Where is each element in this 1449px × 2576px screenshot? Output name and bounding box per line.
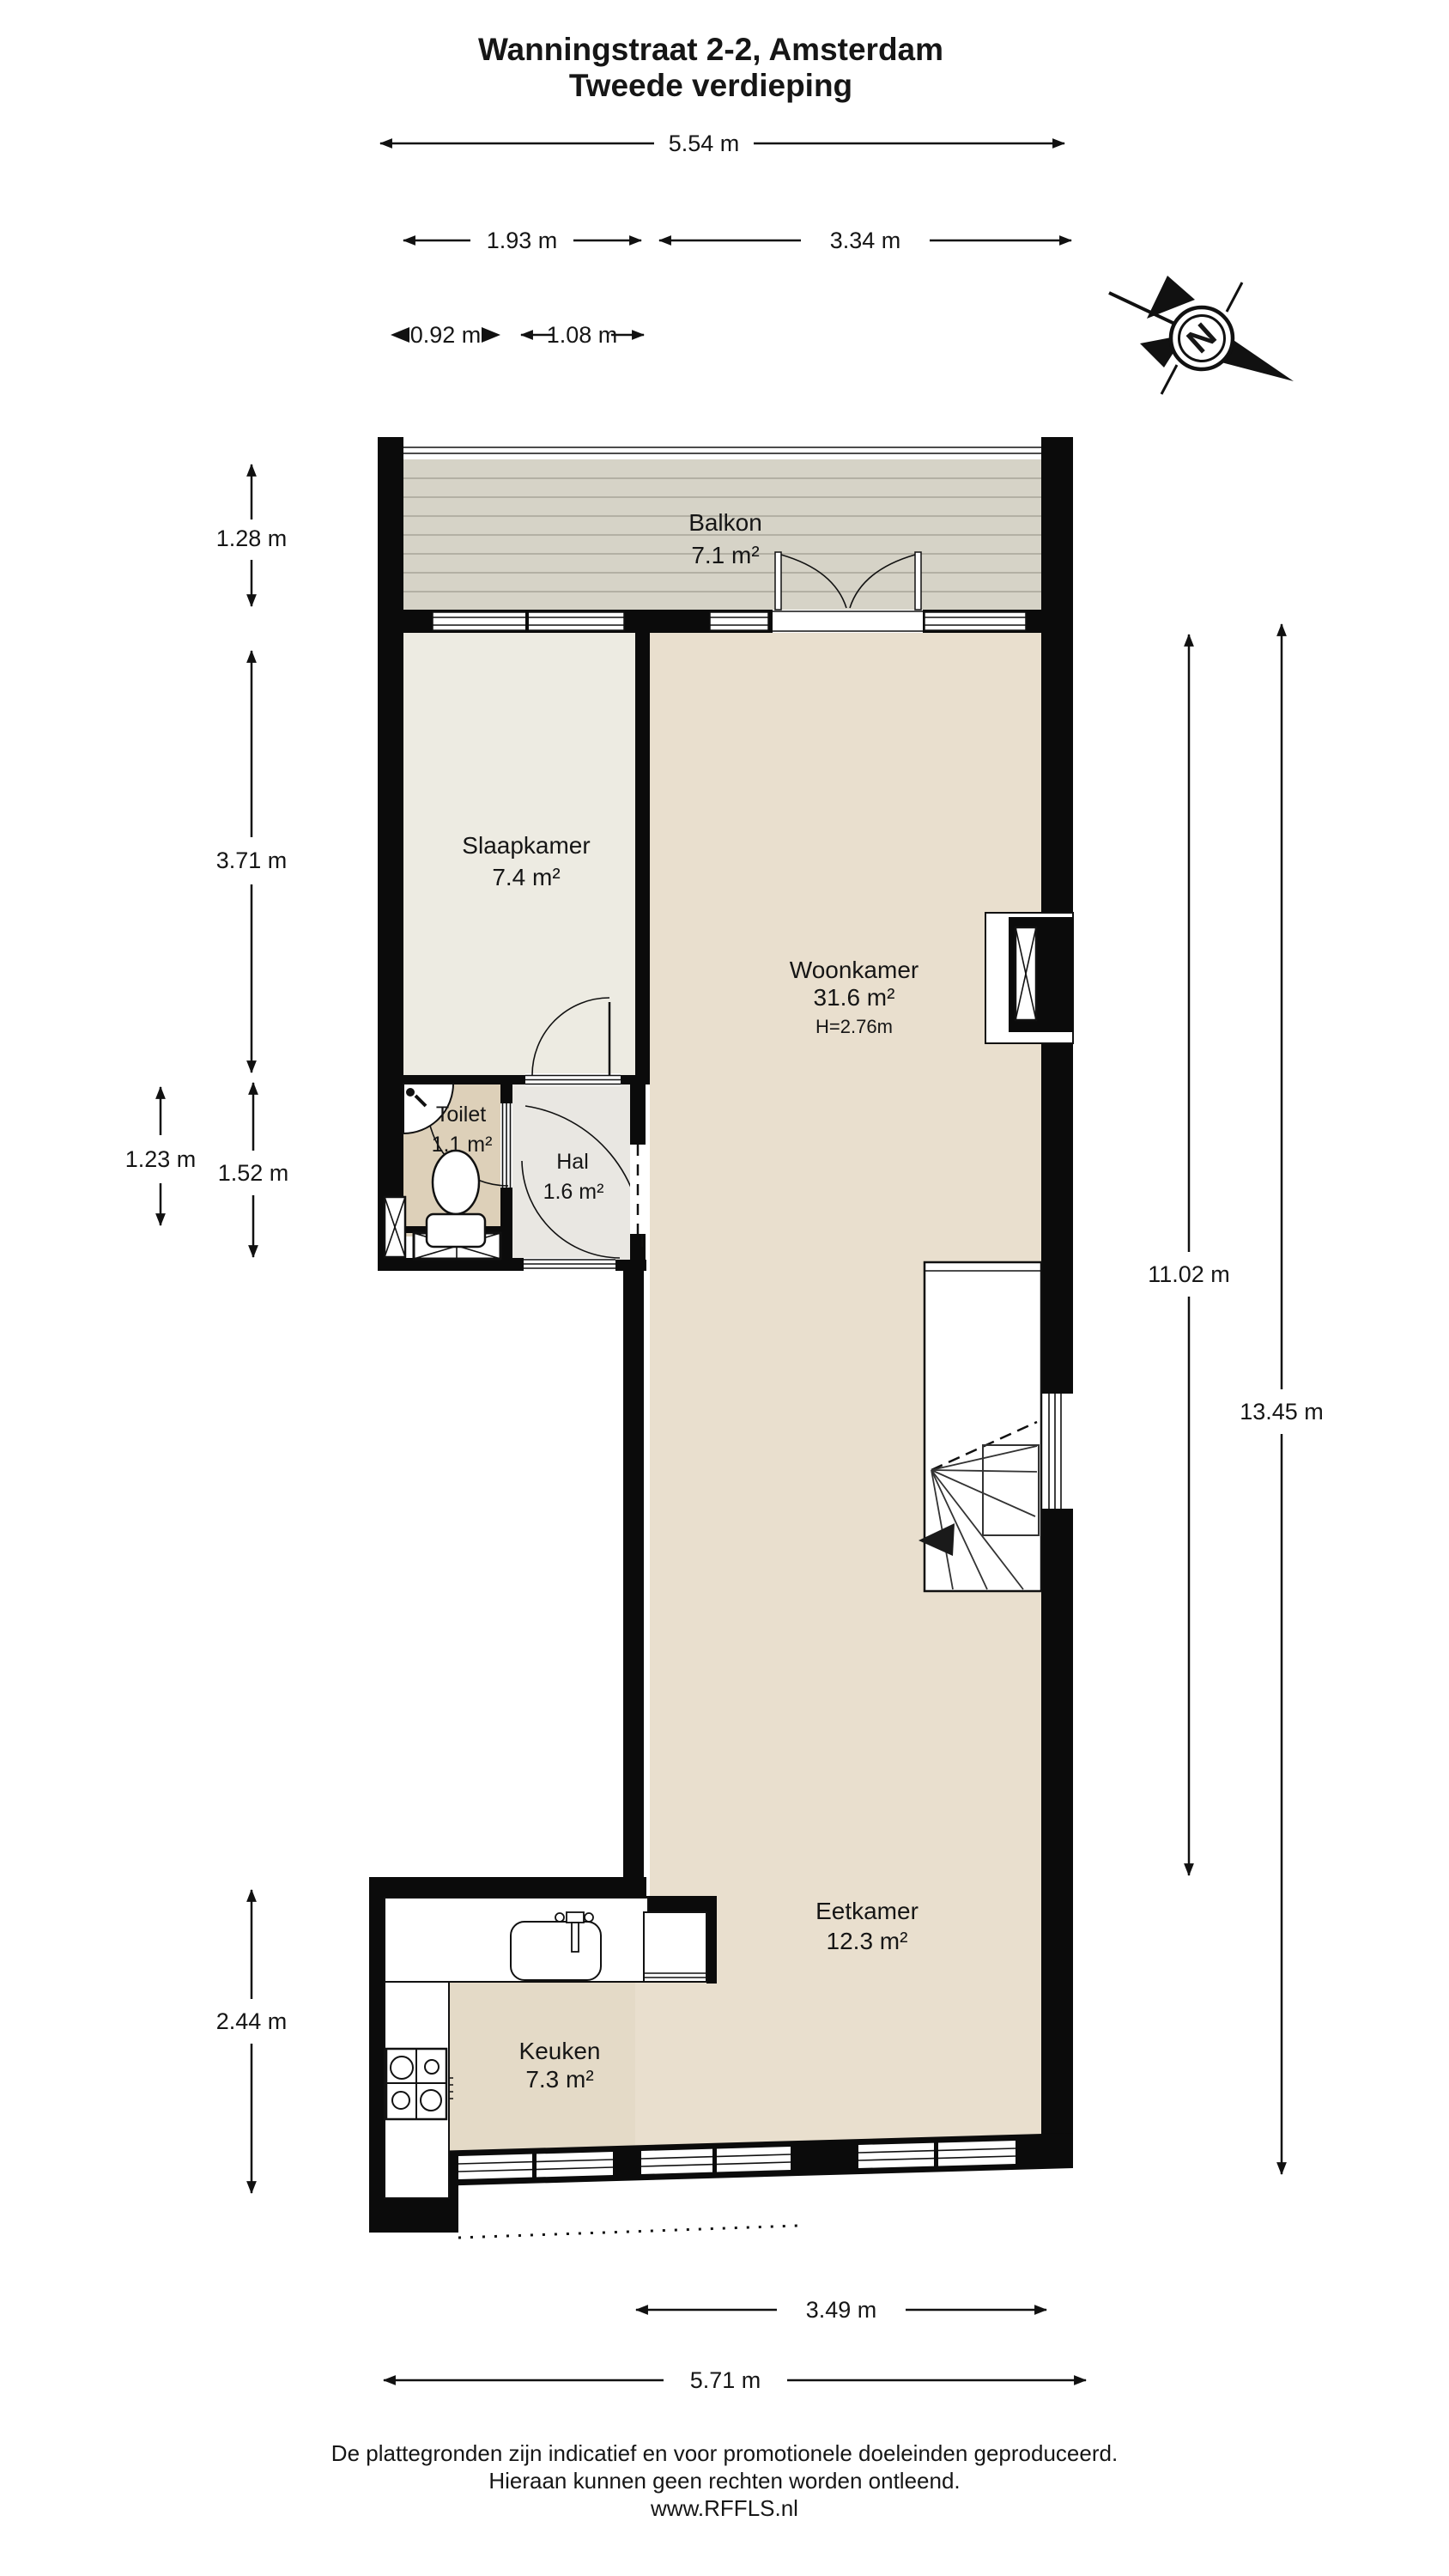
dim-bottom-outer-label: 5.71 m bbox=[690, 2367, 761, 2393]
balkon-area-label: 7.1 m² bbox=[691, 542, 759, 568]
faucet-icon bbox=[406, 1088, 415, 1097]
woonkamer-window-left bbox=[710, 612, 768, 630]
footer-website-link: www.RFFLS.nl bbox=[650, 2495, 798, 2521]
slaapkamer-area-label: 7.4 m² bbox=[492, 864, 560, 890]
dim-top-right-label: 3.34 m bbox=[830, 228, 901, 253]
woonkamer-window-right bbox=[925, 612, 1026, 630]
toilet-label: Toilet bbox=[436, 1103, 486, 1127]
dim-right-inner-label: 11.02 m bbox=[1148, 1261, 1230, 1287]
cabinet-box bbox=[644, 1912, 706, 1982]
eetkamer-area-label: 12.3 m² bbox=[827, 1928, 908, 1954]
dim-small-right-label: 1.08 m bbox=[547, 322, 618, 348]
keuken-label: Keuken bbox=[519, 2038, 601, 2064]
shaft-box bbox=[385, 1197, 405, 1257]
dim-top-left-label: 1.93 m bbox=[487, 228, 558, 253]
slaapkamer-window bbox=[433, 611, 624, 632]
slaapkamer-label: Slaapkamer bbox=[462, 832, 590, 859]
hob-fixture bbox=[386, 2049, 453, 2119]
stair-window bbox=[1044, 1394, 1066, 1509]
dim-small-left-label: 0.92 m bbox=[410, 322, 482, 348]
dim-left-toilet-inner-label: 1.52 m bbox=[218, 1160, 289, 1186]
dim-left-balkon-label: 1.28 m bbox=[216, 526, 288, 551]
dim-bottom-inner-label: 3.49 m bbox=[806, 2297, 877, 2323]
hal-label: Hal bbox=[556, 1150, 589, 1174]
page-title: Wanningstraat 2-2, Amsterdam bbox=[478, 32, 943, 67]
dim-left-toilet-outer-label: 1.23 m bbox=[125, 1146, 197, 1172]
wc-fixture bbox=[427, 1151, 485, 1247]
toilet-area-label: 1.1 m² bbox=[432, 1133, 493, 1157]
dim-left-keuken-label: 2.44 m bbox=[216, 2008, 288, 2034]
sink-fixture bbox=[511, 1912, 601, 1980]
keuken-area-label: 7.3 m² bbox=[525, 2066, 593, 2093]
woonkamer-area-label: 31.6 m² bbox=[814, 984, 895, 1011]
dim-top-total-label: 5.54 m bbox=[669, 131, 740, 156]
balkon-label: Balkon bbox=[688, 509, 762, 536]
floorplan-canvas: Wanningstraat 2-2, Amsterdam Tweede verd… bbox=[0, 0, 1449, 2576]
flue-niche bbox=[985, 913, 1073, 1043]
eetkamer-label: Eetkamer bbox=[815, 1898, 919, 1924]
woonkamer-height-label: H=2.76m bbox=[815, 1016, 893, 1037]
floorplan-page: Wanningstraat 2-2, Amsterdam Tweede verd… bbox=[0, 0, 1449, 2576]
footer-disclaimer-line1: De plattegronden zijn indicatief en voor… bbox=[331, 2440, 1118, 2466]
stairs bbox=[919, 1262, 1041, 1591]
dim-left-slaapkamer-label: 3.71 m bbox=[216, 848, 288, 873]
footer-disclaimer-line2: Hieraan kunnen geen rechten worden ontle… bbox=[488, 2468, 960, 2494]
hal-area-label: 1.6 m² bbox=[543, 1180, 604, 1204]
woonkamer-label: Woonkamer bbox=[790, 957, 919, 983]
hal-open-passage bbox=[630, 1145, 646, 1234]
page-subtitle: Tweede verdieping bbox=[569, 68, 852, 103]
dim-right-outer-label: 13.45 m bbox=[1240, 1399, 1324, 1425]
